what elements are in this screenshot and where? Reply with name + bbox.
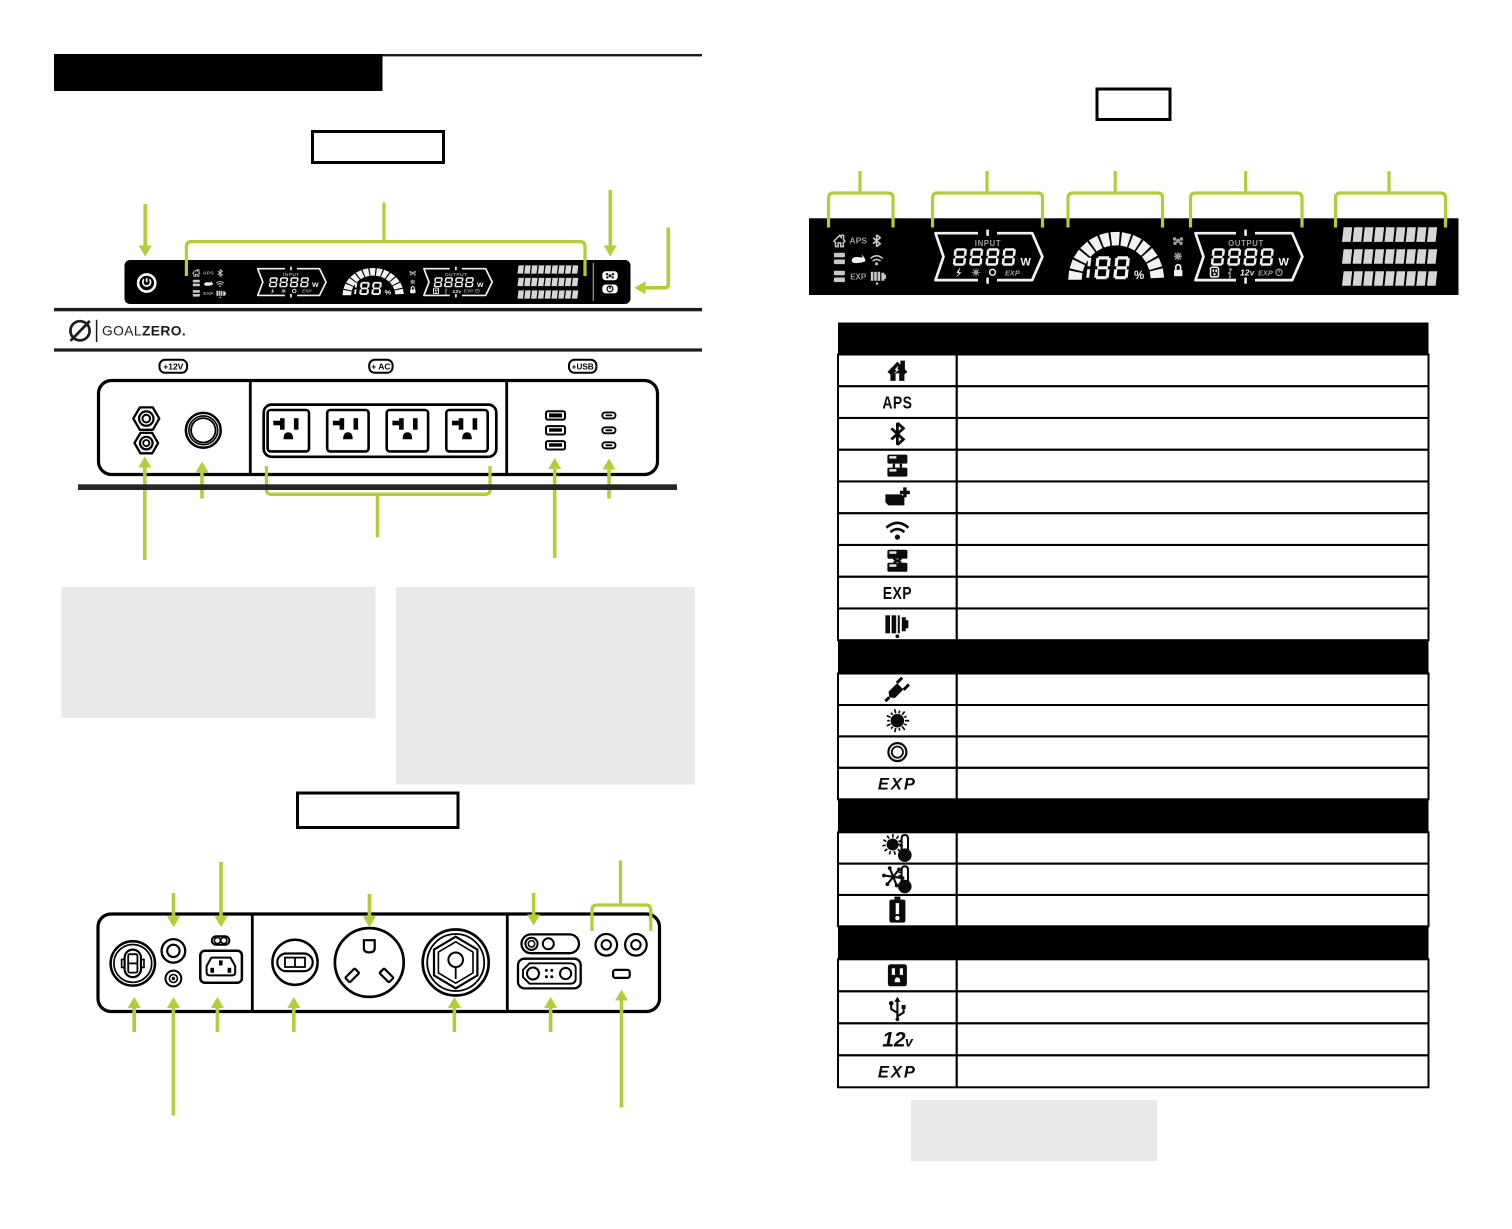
svg-text:W: W [477, 282, 484, 289]
svg-text:W: W [312, 282, 319, 289]
svg-text:GOALZERO.: GOALZERO. [102, 324, 186, 339]
svg-text:INPUT: INPUT [975, 239, 1001, 248]
svg-text:EXP: EXP [203, 291, 214, 297]
svg-text:APS: APS [203, 271, 215, 277]
svg-text:EXP: EXP [464, 289, 473, 294]
svg-text:12: 12 [882, 1028, 906, 1051]
svg-text:W: W [1021, 256, 1032, 268]
svg-text:INPUT: INPUT [283, 272, 300, 278]
svg-text:APS: APS [882, 394, 912, 413]
svg-text:%: % [385, 290, 392, 297]
svg-text:+USB: +USB [572, 363, 594, 372]
svg-text:+12V: +12V [163, 362, 183, 372]
svg-text:EXP: EXP [878, 776, 917, 794]
svg-text:+ AC: + AC [371, 362, 390, 372]
svg-text:EXP: EXP [878, 1063, 917, 1081]
svg-text:EXP: EXP [850, 273, 867, 282]
svg-text:%: % [1134, 270, 1144, 282]
svg-text:OUTPUT: OUTPUT [1228, 239, 1264, 248]
svg-text:EXP: EXP [302, 289, 311, 294]
svg-text:APS: APS [849, 236, 867, 246]
svg-text:EXP: EXP [1005, 268, 1020, 277]
svg-text:OUTPUT: OUTPUT [445, 272, 468, 278]
svg-text:W: W [1279, 256, 1290, 268]
svg-text:v: v [905, 1033, 914, 1049]
svg-text:EXP: EXP [1258, 268, 1273, 277]
svg-text:EXP: EXP [883, 585, 912, 604]
